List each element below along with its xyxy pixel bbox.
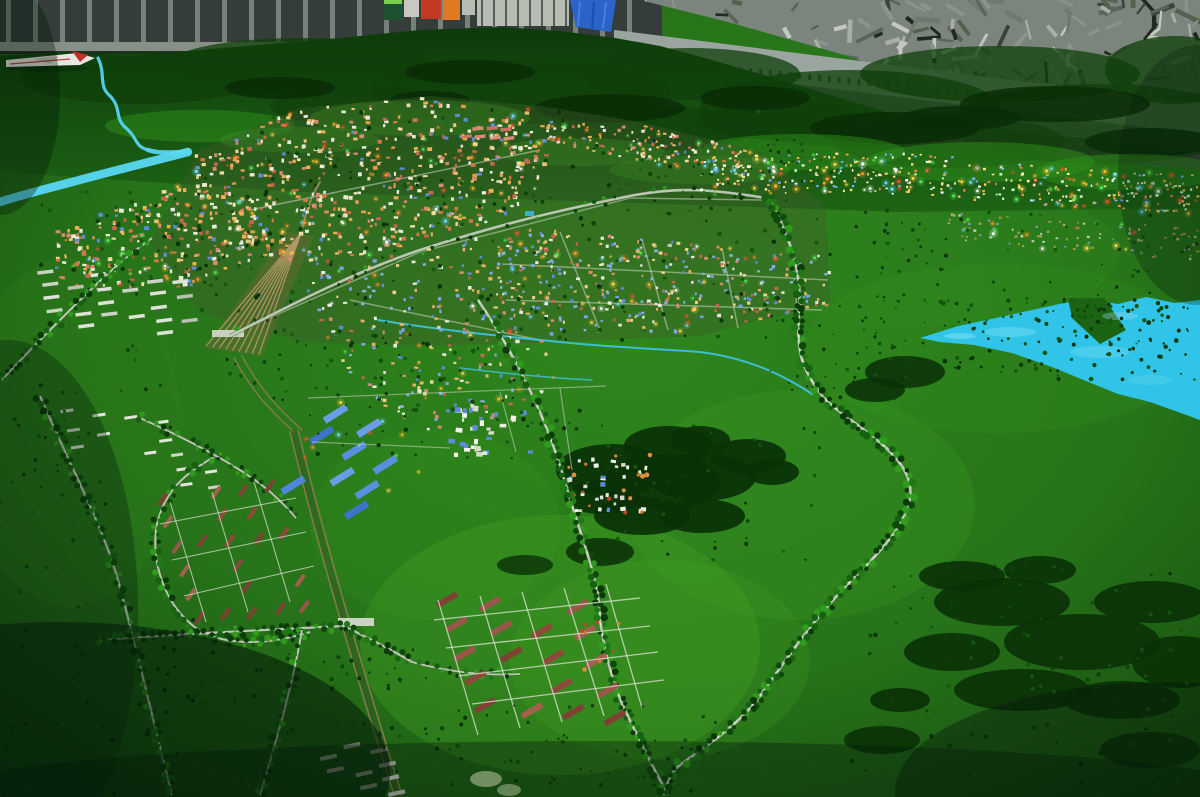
photo-city-scale-model: [0, 0, 1200, 797]
scene-root: [0, 0, 1200, 797]
scale-model-scene: [0, 0, 1200, 797]
